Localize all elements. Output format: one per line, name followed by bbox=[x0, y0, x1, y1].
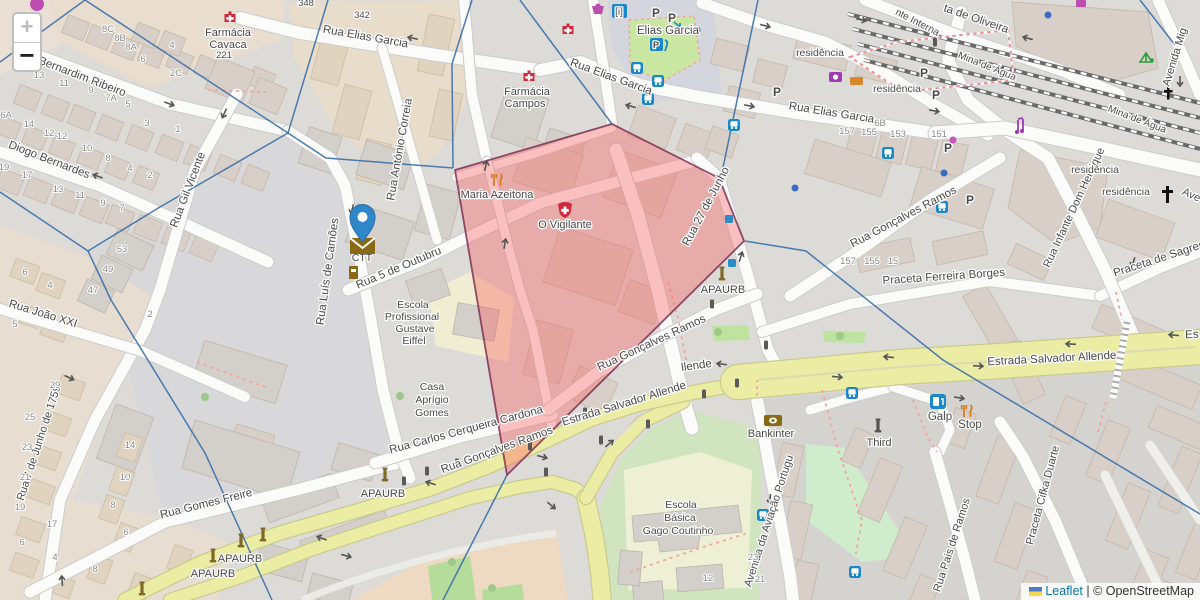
svg-text:4: 4 bbox=[47, 280, 52, 291]
svg-text:Profissional: Profissional bbox=[385, 311, 439, 323]
svg-text:residência: residência bbox=[796, 47, 844, 59]
svg-text:221: 221 bbox=[216, 50, 232, 61]
svg-text:342: 342 bbox=[354, 10, 370, 21]
svg-text:Escola: Escola bbox=[665, 499, 697, 511]
svg-text:Aprígio: Aprígio bbox=[415, 394, 448, 406]
svg-text:7A: 7A bbox=[105, 93, 117, 104]
svg-text:11: 11 bbox=[59, 78, 69, 89]
svg-text:15: 15 bbox=[888, 256, 899, 267]
svg-text:Maria Azeitona: Maria Azeitona bbox=[461, 189, 535, 201]
svg-text:Farmácia: Farmácia bbox=[504, 86, 551, 98]
svg-text:12: 12 bbox=[44, 128, 55, 139]
svg-text:153: 153 bbox=[890, 129, 906, 140]
svg-text:12: 12 bbox=[57, 131, 68, 142]
svg-text:8A: 8A bbox=[125, 42, 137, 53]
svg-text:Elias Garcia: Elias Garcia bbox=[637, 25, 700, 37]
svg-text:11: 11 bbox=[75, 190, 85, 201]
svg-text:157: 157 bbox=[839, 126, 855, 137]
svg-text:2: 2 bbox=[147, 170, 152, 181]
svg-text:residência: residência bbox=[1071, 164, 1119, 176]
svg-text:P: P bbox=[920, 66, 928, 80]
svg-text:8C: 8C bbox=[102, 24, 114, 35]
svg-text:4: 4 bbox=[169, 40, 174, 51]
svg-text:APAURB: APAURB bbox=[701, 284, 745, 296]
svg-text:P: P bbox=[966, 193, 974, 207]
svg-text:17: 17 bbox=[47, 519, 58, 530]
svg-text:8: 8 bbox=[105, 153, 110, 164]
svg-text:Gomes: Gomes bbox=[415, 407, 449, 419]
svg-text:10: 10 bbox=[120, 472, 131, 483]
svg-text:P: P bbox=[773, 85, 781, 99]
svg-text:Eiffel: Eiffel bbox=[402, 335, 425, 347]
svg-text:Escola: Escola bbox=[397, 299, 429, 311]
svg-text:49: 49 bbox=[103, 264, 114, 275]
svg-text:8: 8 bbox=[92, 564, 97, 575]
svg-text:1: 1 bbox=[175, 124, 180, 135]
svg-text:29: 29 bbox=[50, 380, 61, 391]
svg-text:Bankinter: Bankinter bbox=[748, 428, 795, 440]
svg-text:P: P bbox=[652, 6, 660, 20]
svg-text:Galp: Galp bbox=[928, 411, 952, 423]
svg-text:Stop: Stop bbox=[958, 419, 982, 431]
svg-text:APAURB: APAURB bbox=[361, 488, 405, 500]
svg-text:8B: 8B bbox=[114, 33, 126, 44]
svg-text:8: 8 bbox=[110, 500, 115, 511]
svg-text:14: 14 bbox=[24, 119, 35, 130]
svg-text:19: 19 bbox=[0, 162, 9, 173]
svg-text:5: 5 bbox=[12, 319, 17, 330]
svg-text:155: 155 bbox=[861, 127, 877, 138]
svg-text:[i]: [i] bbox=[615, 7, 623, 18]
svg-text:151: 151 bbox=[931, 129, 947, 140]
svg-text:23: 23 bbox=[22, 442, 33, 453]
svg-text:17: 17 bbox=[22, 170, 33, 181]
svg-text:Gago Coutinho: Gago Coutinho bbox=[643, 525, 714, 537]
svg-text:6: 6 bbox=[140, 54, 145, 65]
svg-text:2C: 2C bbox=[170, 68, 182, 79]
svg-text:Casa: Casa bbox=[420, 381, 445, 393]
svg-text:21: 21 bbox=[20, 472, 31, 483]
svg-text:5: 5 bbox=[125, 99, 130, 110]
svg-text:APAURB: APAURB bbox=[218, 553, 262, 565]
svg-text:348: 348 bbox=[298, 0, 314, 9]
svg-text:157: 157 bbox=[840, 256, 856, 267]
svg-text:residência: residência bbox=[873, 83, 921, 95]
svg-text:6A: 6A bbox=[0, 110, 12, 121]
svg-text:Campos: Campos bbox=[505, 98, 546, 110]
svg-text:Gustave: Gustave bbox=[395, 323, 434, 335]
svg-text:47: 47 bbox=[88, 285, 99, 296]
svg-text:23: 23 bbox=[748, 552, 759, 563]
svg-text:Farmácia: Farmácia bbox=[205, 27, 252, 39]
svg-text:13: 13 bbox=[53, 184, 64, 195]
svg-text:10: 10 bbox=[82, 143, 93, 154]
svg-text:9: 9 bbox=[100, 198, 105, 209]
svg-text:O Vigilante: O Vigilante bbox=[538, 219, 592, 231]
svg-text:Third: Third bbox=[866, 437, 891, 449]
svg-text:4: 4 bbox=[52, 552, 57, 563]
svg-text:2: 2 bbox=[147, 309, 152, 320]
svg-text:6: 6 bbox=[123, 527, 128, 538]
svg-text:12: 12 bbox=[703, 573, 714, 584]
svg-text:3: 3 bbox=[144, 118, 149, 129]
svg-text:Básica: Básica bbox=[664, 512, 696, 524]
svg-text:P: P bbox=[932, 88, 940, 102]
svg-text:APAURB: APAURB bbox=[191, 568, 235, 580]
svg-text:21: 21 bbox=[755, 574, 766, 585]
svg-text:Es: Es bbox=[1185, 329, 1199, 342]
svg-text:53: 53 bbox=[117, 244, 128, 255]
svg-text:6: 6 bbox=[22, 267, 27, 278]
svg-text:25: 25 bbox=[25, 412, 36, 423]
svg-text:P: P bbox=[944, 141, 952, 155]
svg-text:9: 9 bbox=[88, 85, 93, 96]
svg-text:14: 14 bbox=[125, 440, 136, 451]
svg-text:4: 4 bbox=[127, 163, 132, 174]
svg-text:residência: residência bbox=[1102, 186, 1150, 198]
svg-text:19: 19 bbox=[15, 502, 26, 513]
svg-text:7: 7 bbox=[119, 203, 124, 214]
svg-text:155: 155 bbox=[864, 256, 880, 267]
svg-text:P: P bbox=[653, 40, 659, 50]
svg-text:6: 6 bbox=[19, 537, 24, 548]
